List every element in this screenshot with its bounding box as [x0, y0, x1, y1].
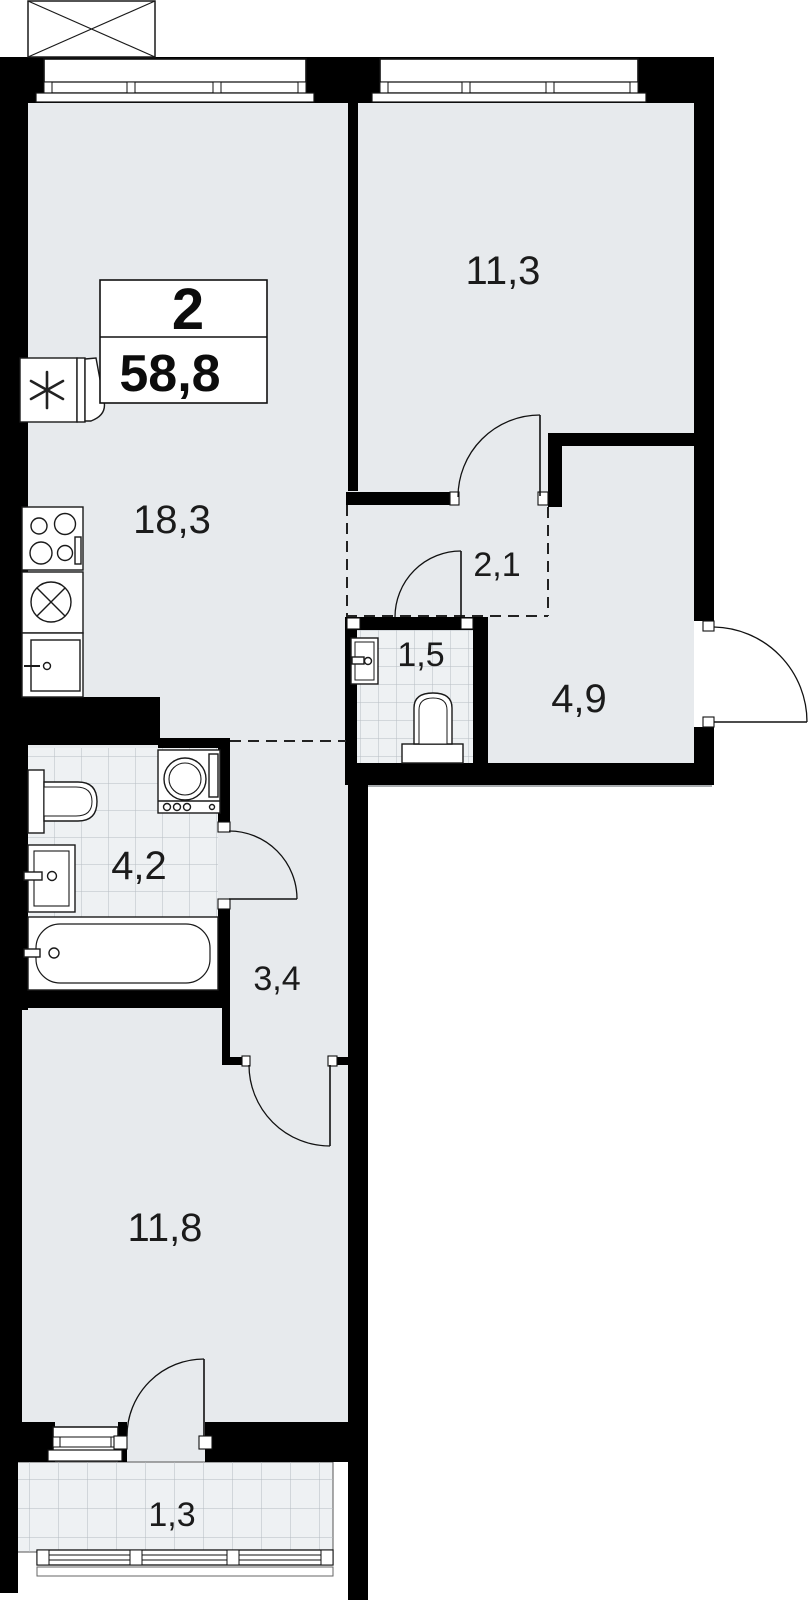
wall-corridor-bottom-left: [222, 1057, 242, 1065]
wall-bath-bottom: [22, 990, 230, 1008]
floor-plan: 2 58,8 18,3 11,3 2,1 1,5 4,9 4,2 3,4 11,…: [0, 0, 808, 1600]
window-bedroom-bottom: [48, 1427, 122, 1461]
window-bedroom-top: [372, 59, 646, 102]
wall-corridor-bottom-right: [337, 1057, 348, 1065]
wall-bedroom-bottom-left: [346, 492, 450, 505]
apartment-info-box: 2 58,8: [100, 277, 267, 403]
label-balcony: 1,3: [148, 1496, 195, 1534]
wall-left-mid: [0, 1010, 22, 1462]
wall-bedroom2-bottom-right: [205, 1422, 348, 1462]
washing-machine-icon: [158, 750, 220, 813]
wall-kitchen-bedroom: [348, 100, 358, 491]
kitchen-sink-icon: [22, 572, 83, 633]
label-hall-zone: 2,1: [473, 546, 520, 584]
stove-icon: [22, 507, 83, 570]
fridge-icon: [20, 358, 104, 422]
bathtub-icon: [24, 917, 218, 990]
wall-kitchen-bath-chunk: [0, 697, 160, 745]
wall-wc-top: [345, 617, 473, 630]
wall-bath-right-lower: [218, 908, 230, 997]
wall-hall-bottom: [345, 763, 713, 785]
room-count: 2: [172, 277, 204, 342]
wall-wc-right: [473, 617, 488, 763]
loggia-cross-icon: [28, 1, 155, 57]
wall-right-lower: [348, 763, 368, 1600]
label-bathroom: 4,2: [111, 844, 167, 888]
wall-corridor-left: [222, 990, 230, 1065]
label-bedroom-top: 11,3: [466, 249, 541, 293]
door-entrance: [703, 621, 807, 727]
wc-sink-icon: [351, 638, 378, 684]
label-entrance-hall: 4,9: [551, 677, 607, 721]
wall-bath-top: [158, 738, 230, 748]
label-bedroom-bottom: 11,8: [128, 1206, 203, 1250]
window-kitchen: [36, 59, 314, 102]
label-kitchen-living: 18,3: [133, 498, 211, 542]
balcony-glazing: [37, 1550, 333, 1576]
total-area: 58,8: [119, 345, 220, 403]
bathroom-sink-icon: [24, 845, 75, 912]
balcony-slab-edge: [37, 1567, 333, 1576]
wall-hall-top: [552, 433, 694, 446]
floorplan-svg: 2 58,8 18,3 11,3 2,1 1,5 4,9 4,2 3,4 11,…: [0, 0, 808, 1600]
label-corridor: 3,4: [253, 960, 300, 998]
wall-left-lower: [0, 1462, 18, 1593]
label-wc: 1,5: [397, 636, 444, 674]
wall-bedroom2-bottom-left: [0, 1422, 55, 1462]
wall-right-upper: [694, 57, 714, 621]
kitchen-cabinet-icon: [22, 633, 83, 697]
